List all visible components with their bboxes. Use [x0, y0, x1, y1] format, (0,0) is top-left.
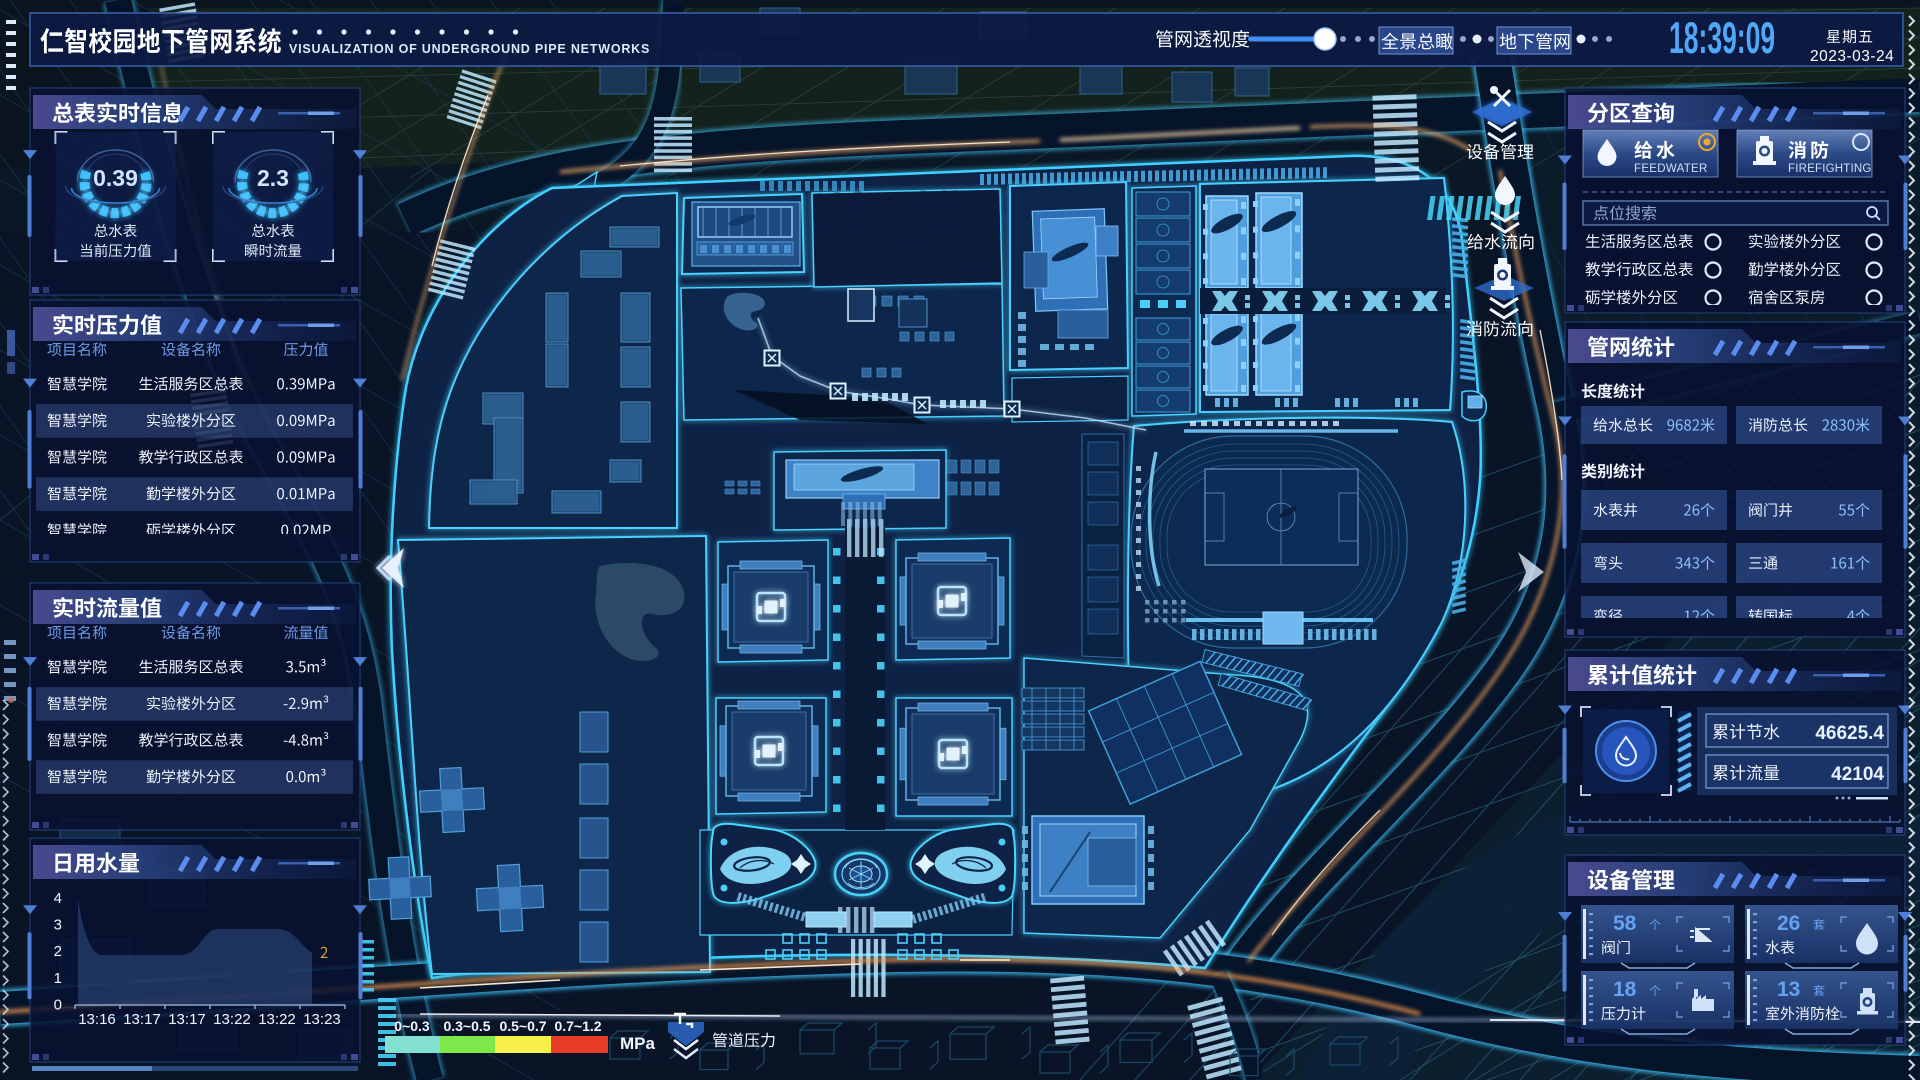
svg-text:4: 4 — [54, 890, 62, 907]
svg-text:0.3~0.5: 0.3~0.5 — [443, 1018, 490, 1034]
svg-text:FEEDWATER: FEEDWATER — [1634, 163, 1708, 175]
svg-text:13:17: 13:17 — [168, 1011, 206, 1028]
svg-text:2.3: 2.3 — [257, 165, 289, 191]
svg-text:VISUALIZATION OF UNDERGROUND: VISUALIZATION OF UNDERGROUND PIPE NETWOR… — [289, 42, 650, 56]
svg-text:13: 13 — [1777, 978, 1800, 1001]
svg-text:3: 3 — [54, 917, 62, 934]
svg-text:18:39:09: 18:39:09 — [1669, 13, 1775, 63]
svg-text:1: 1 — [54, 970, 62, 987]
svg-text:2: 2 — [54, 943, 62, 960]
svg-text:18: 18 — [1613, 978, 1637, 1001]
svg-text:13:22: 13:22 — [258, 1011, 296, 1028]
svg-text:13:22: 13:22 — [213, 1011, 251, 1028]
svg-text:13:23: 13:23 — [303, 1011, 341, 1028]
svg-text:0.5~0.7: 0.5~0.7 — [499, 1018, 546, 1034]
svg-text:46625.4: 46625.4 — [1815, 723, 1884, 744]
svg-text:13:17: 13:17 — [123, 1011, 161, 1028]
svg-text:0: 0 — [54, 996, 62, 1013]
svg-text:FIREFIGHTING: FIREFIGHTING — [1788, 163, 1872, 175]
svg-text:26: 26 — [1777, 912, 1800, 935]
svg-text:0.39: 0.39 — [93, 165, 138, 191]
svg-text:2023-03-24: 2023-03-24 — [1810, 48, 1894, 65]
svg-text:0.7~1.2: 0.7~1.2 — [554, 1018, 601, 1034]
svg-text:0~0.3: 0~0.3 — [394, 1018, 430, 1034]
svg-text:13:16: 13:16 — [78, 1011, 116, 1028]
svg-text:58: 58 — [1613, 912, 1637, 935]
svg-text:MPa: MPa — [620, 1034, 656, 1053]
svg-text:42104: 42104 — [1831, 764, 1884, 785]
